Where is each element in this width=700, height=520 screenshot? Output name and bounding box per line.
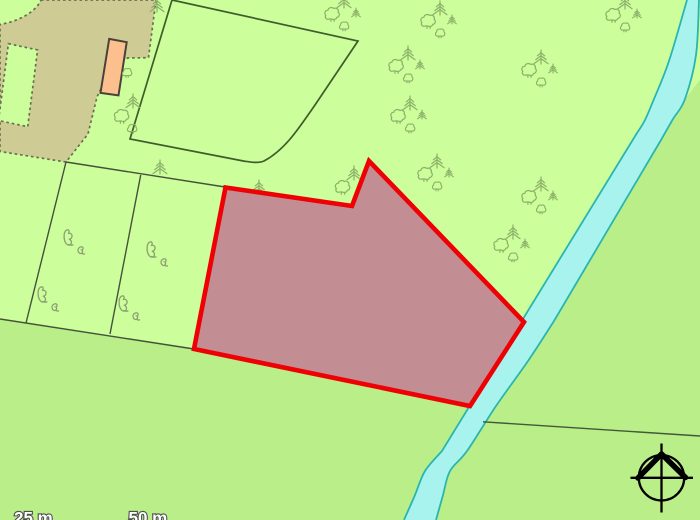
- svg-text:50 m: 50 m: [129, 509, 168, 520]
- svg-text:25 m: 25 m: [14, 509, 53, 520]
